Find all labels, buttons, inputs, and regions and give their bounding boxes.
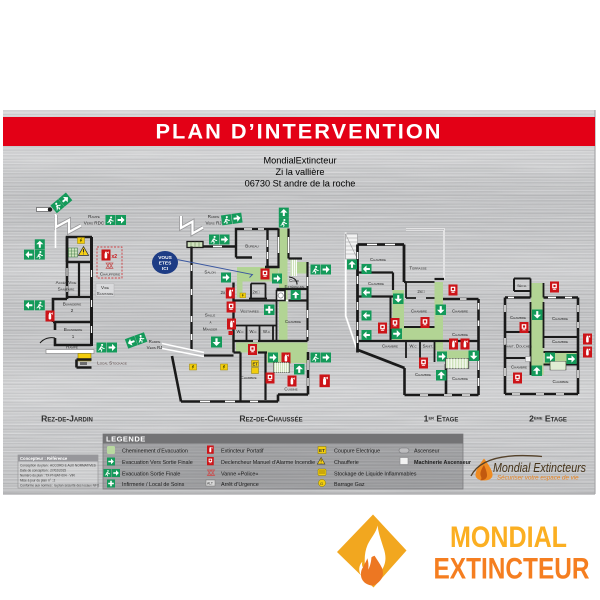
- svg-text:Cour: Cour: [289, 278, 300, 283]
- svg-text:Salle: Salle: [205, 313, 215, 318]
- svg-text:Extérieure: Extérieure: [284, 284, 304, 289]
- svg-text:Chambre: Chambre: [452, 309, 468, 314]
- svg-text:Sanitaire: Sanitaire: [58, 287, 75, 292]
- svg-text:Accès Vide: Accès Vide: [56, 280, 77, 285]
- svg-text:Chambre: Chambre: [552, 339, 568, 344]
- svg-text:Chambre: Chambre: [382, 344, 398, 349]
- svg-text:VOUS: VOUS: [158, 255, 172, 261]
- svg-text:Numéro du plan : TX-PI-BAT-004: Numéro du plan : TX-PI-BAT-004 - VIR: [20, 474, 75, 478]
- svg-text:Chambre: Chambre: [511, 365, 527, 370]
- svg-text:Conception du plan : ACCORD E: Conception du plan : ACCORD E AUX NORMAT…: [20, 464, 96, 468]
- svg-text:Sanit. Douches: Sanit. Douches: [504, 344, 532, 349]
- svg-text:Rez-de-Jardin: Rez-de-Jardin: [41, 414, 93, 424]
- svg-text:Barrage Gaz: Barrage Gaz: [334, 482, 365, 488]
- svg-text:Chambre: Chambre: [552, 316, 568, 321]
- svg-text:Vestiaires: Vestiaires: [240, 309, 259, 314]
- svg-text:Chambre: Chambre: [368, 281, 384, 286]
- svg-text:Machinerie Ascenseur: Machinerie Ascenseur: [414, 460, 472, 466]
- svg-text:2: 2: [71, 308, 74, 313]
- svg-text:2x: 2x: [221, 290, 227, 295]
- svg-text:Conforme aux normes : la plan: Conforme aux normes : la plan sécurité d…: [20, 484, 100, 488]
- svg-text:Vers RDC: Vers RDC: [84, 221, 105, 226]
- svg-text:Extincteur Portatif: Extincteur Portatif: [221, 449, 264, 455]
- svg-text:Rampe: Rampe: [208, 214, 220, 219]
- svg-text:Concepteur : Référence: Concepteur : Référence: [20, 456, 68, 461]
- svg-text:Vide: Vide: [101, 285, 109, 290]
- svg-text:Cheminement d’Evacuation: Cheminement d’Evacuation: [122, 449, 188, 455]
- svg-text:Cuisine: Cuisine: [284, 387, 297, 392]
- svg-text:Coupure Electrique: Coupure Electrique: [334, 449, 380, 455]
- svg-text:Chambre: Chambre: [452, 376, 468, 381]
- svg-text:Chambre: Chambre: [370, 257, 386, 262]
- svg-text:2x□: 2x□: [417, 289, 425, 294]
- svg-text:Rez-de-Chaussée: Rez-de-Chaussée: [239, 414, 302, 424]
- svg-text:Rampe: Rampe: [149, 339, 161, 344]
- svg-text:PLAN D’INTERVENTION: PLAN D’INTERVENTION: [156, 120, 443, 144]
- svg-text:Sanitaire: Sanitaire: [97, 291, 114, 296]
- svg-text:Buanderie: Buanderie: [63, 302, 82, 307]
- svg-text:MondialExtincteur: MondialExtincteur: [263, 156, 336, 166]
- svg-text:06730 St andre de la roche: 06730 St andre de la roche: [245, 179, 356, 189]
- svg-text:Buanderie: Buanderie: [64, 327, 83, 332]
- svg-text:Local Stockage: Local Stockage: [97, 361, 127, 366]
- svg-text:Rampe: Rampe: [88, 214, 100, 219]
- svg-text:Mondial Extincteurs: Mondial Extincteurs: [493, 461, 586, 475]
- svg-text:Zi la vallière: Zi la vallière: [275, 167, 324, 177]
- svg-text:W.c: W.c: [409, 344, 417, 349]
- svg-text:Stockage de Liquide Inflammabl: Stockage de Liquide Inflammables: [334, 472, 417, 478]
- svg-text:Mise à jour du plan n° : 2: Mise à jour du plan n° : 2: [20, 479, 56, 483]
- svg-text:W.c: W.c: [263, 329, 271, 334]
- svg-text:W.c: W.c: [236, 329, 244, 334]
- svg-text:Salon: Salon: [204, 270, 215, 275]
- svg-text:Manger: Manger: [203, 327, 218, 332]
- svg-text:MONDIAL: MONDIAL: [450, 521, 567, 554]
- svg-text:Chambre: Chambre: [285, 319, 301, 324]
- svg-text:ICI: ICI: [162, 266, 169, 272]
- svg-text:Chaufferie: Chaufferie: [334, 460, 359, 466]
- svg-text:LEGENDE: LEGENDE: [106, 435, 146, 444]
- svg-text:Chambre: Chambre: [452, 332, 468, 337]
- svg-text:ET: ET: [253, 362, 259, 367]
- svg-text:Chambre: Chambre: [415, 372, 431, 377]
- svg-text:Arrêt d’Urgence: Arrêt d’Urgence: [221, 482, 259, 488]
- svg-text:Evacuation Sortie Finale: Evacuation Sortie Finale: [122, 472, 180, 478]
- svg-text:x2: x2: [112, 254, 118, 260]
- svg-text:Vers RJ: Vers RJ: [147, 345, 163, 350]
- svg-text:1: 1: [72, 334, 75, 339]
- svg-text:Terrasse: Terrasse: [409, 266, 426, 271]
- svg-text:Ascenseur: Ascenseur: [414, 449, 440, 455]
- svg-text:Chaufferie: Chaufferie: [100, 272, 120, 277]
- svg-text:Chambre: Chambre: [240, 375, 256, 380]
- svg-text:Séch.: Séch.: [517, 283, 527, 288]
- svg-text:Chambre: Chambre: [552, 379, 568, 384]
- svg-text:Date de conception : 27/02/201: Date de conception : 27/02/2015: [20, 469, 66, 473]
- svg-text:Vanne »Police«: Vanne »Police«: [221, 472, 258, 478]
- svg-text:ETES: ETES: [159, 261, 172, 267]
- svg-text:EXTINCTEUR: EXTINCTEUR: [434, 553, 590, 586]
- svg-text:Infirmerie / Local de Soins: Infirmerie / Local de Soins: [122, 482, 185, 488]
- svg-text:2x□: 2x□: [252, 290, 260, 295]
- svg-text:Evacuation Vers Sortie Finale: Evacuation Vers Sortie Finale: [122, 460, 193, 466]
- svg-text:Sécuriser votre espace de vie: Sécuriser votre espace de vie: [497, 475, 579, 482]
- svg-text:Vers RJ: Vers RJ: [205, 221, 221, 226]
- svg-text:Chambre: Chambre: [510, 315, 526, 320]
- svg-text:G: G: [320, 481, 323, 486]
- svg-text:Sanit.: Sanit.: [423, 344, 434, 349]
- svg-text:ET: ET: [319, 448, 325, 453]
- svg-text:Rampe: Rampe: [66, 345, 78, 350]
- svg-text:ALT: ALT: [207, 482, 213, 486]
- svg-text:Declencheur Manuel d’Alarme In: Declencheur Manuel d’Alarme Incendie: [221, 460, 315, 466]
- svg-text:à: à: [209, 320, 211, 325]
- svg-text:Chambre: Chambre: [411, 309, 427, 314]
- svg-text:W.c: W.c: [249, 329, 257, 334]
- svg-text:Bureau: Bureau: [245, 244, 258, 249]
